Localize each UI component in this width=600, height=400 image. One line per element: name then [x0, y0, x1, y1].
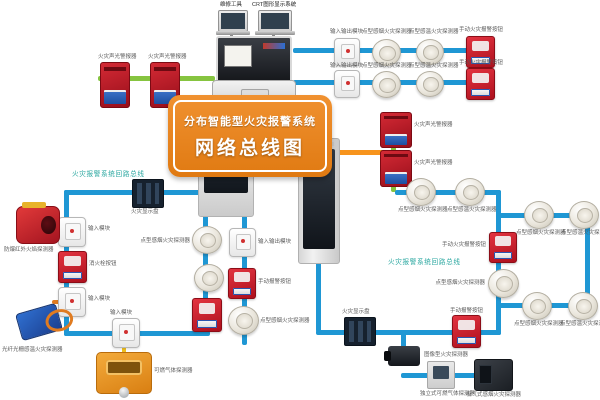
smoke-detector-label: 点型感烟火灾探测器 — [436, 280, 486, 286]
blue-drop-cabinet — [316, 262, 321, 332]
fiber-heat-detector-label: 光纤光栅感温火灾探测器 — [2, 347, 63, 353]
heat-detector-label: 点型感温火灾探测器 — [409, 29, 459, 35]
input-module — [58, 217, 86, 247]
smoke-detector — [522, 292, 552, 320]
gas-detector-label: 可燃气体探测器 — [154, 368, 193, 374]
smoke-detector — [372, 71, 401, 98]
manual-call-point-label: 手动报警按钮 — [258, 279, 291, 285]
input-module-label: 输入模块 — [88, 296, 110, 302]
smoke-detector — [524, 201, 554, 229]
io-module-label: 输入输出模块 — [330, 63, 363, 69]
manual-call-point — [466, 68, 495, 100]
smoke-detector-label: 点型感烟火灾探测器 — [362, 63, 412, 69]
flame-detector — [16, 206, 60, 244]
sound-light-alarm-label: 火灾声光警报器 — [414, 160, 453, 166]
sound-light-alarm-label: 火灾声光警报器 — [98, 54, 137, 60]
smoke-detector — [488, 269, 519, 298]
laptop-label: 维修工具 — [220, 2, 242, 8]
aspirating-smoke-detector — [474, 359, 513, 391]
heat-detector — [568, 292, 598, 320]
hydrant-button-label: 消火栓按钮 — [89, 261, 117, 267]
smoke-detector-label: 点型感烟火灾探测器 — [362, 29, 412, 35]
sound-light-alarm — [100, 62, 130, 108]
image-fire-detector-label: 图像型火灾探测器 — [424, 352, 468, 358]
flame-detector-label: 防爆红外火焰探测器 — [4, 247, 54, 253]
system-title: 分布智能型火灾报警系统 — [184, 113, 316, 129]
fire-display-panel — [132, 179, 164, 208]
smoke-detector — [192, 226, 222, 254]
console-control-unit — [216, 36, 292, 84]
manual-call-point — [452, 315, 481, 348]
smoke-detector — [228, 306, 259, 335]
standalone-gas-detector — [427, 361, 455, 389]
loop-bus-caption-right: 火灾报警系统回路总线 — [388, 256, 461, 266]
manual-call-point — [192, 298, 222, 332]
diagram-title: 网络总线图 — [195, 133, 305, 160]
input-module-label: 输入模块 — [88, 226, 110, 232]
image-fire-detector — [388, 346, 420, 366]
heat-detector-label: 点型感温火灾探测器 — [447, 207, 497, 213]
heat-detector — [416, 71, 444, 97]
title-banner: 分布智能型火灾报警系统 网络总线图 — [168, 95, 332, 177]
title-banner-inner: 分布智能型火灾报警系统 网络总线图 — [173, 100, 327, 172]
io-module-label: 输入输出模块 — [258, 239, 291, 245]
aspirating-smoke-detector-label: 吸气式感烟火灾探测器 — [466, 392, 521, 398]
smoke-detector-label: 点型感烟火灾探测器 — [514, 321, 564, 327]
smoke-detector-label: 点型感烟火灾探测器 — [141, 238, 191, 244]
manual-call-point — [489, 232, 517, 263]
io-module — [229, 228, 256, 257]
sound-light-alarm-label: 火灾声光警报器 — [148, 54, 187, 60]
gas-detector — [96, 352, 152, 394]
laptop — [218, 10, 248, 32]
heat-detector — [455, 178, 485, 206]
loop-bus-caption-left: 火灾报警系统回路总线 — [72, 168, 145, 178]
laptop — [258, 10, 292, 32]
smoke-detector — [194, 264, 224, 292]
heat-detector — [569, 201, 599, 229]
hydrant-button — [58, 251, 87, 283]
manual-call-point-label: 手动火灾报警按钮 — [459, 60, 503, 66]
smoke-detector-label: 点型感烟火灾探测器 — [398, 207, 448, 213]
heat-detector — [416, 39, 444, 65]
smoke-detector-label: 点型感烟火灾探测器 — [260, 318, 310, 324]
smoke-detector — [406, 178, 436, 206]
network-diagram: 分布智能型火灾报警系统 网络总线图 火灾报警系统回路总线 火灾报警系统回路总线 … — [0, 0, 600, 400]
manual-call-point-label: 手动报警按钮 — [450, 308, 483, 314]
manual-call-point — [228, 268, 256, 299]
smoke-detector-label: 点型感烟火灾探测器 — [516, 230, 566, 236]
sound-light-alarm-label: 火灾声光警报器 — [414, 122, 453, 128]
input-module — [112, 318, 140, 348]
heat-detector-label: 点型感温火灾探测器 — [409, 63, 459, 69]
manual-call-point-label: 手动火灾报警按钮 — [442, 242, 486, 248]
sound-light-alarm — [380, 150, 412, 187]
io-module-label: 输入输出模块 — [330, 29, 363, 35]
sound-light-alarm — [380, 112, 412, 148]
fire-display-panel-label: 火灾显示盘 — [131, 209, 159, 215]
heat-detector-label: 点型感温火灾探测器 — [560, 321, 600, 327]
laptop-label: CRT图形显示系统 — [252, 2, 296, 8]
fiber-heat-detector — [15, 303, 63, 341]
manual-call-point-label: 手动火灾报警按钮 — [459, 27, 503, 33]
heat-detector-label: 点型感温火灾探测器 — [561, 230, 600, 236]
input-module-label: 输入模块 — [110, 310, 132, 316]
fire-display-panel-label: 火灾显示盘 — [342, 309, 370, 315]
fire-display-panel — [344, 317, 376, 346]
io-module — [334, 70, 360, 98]
